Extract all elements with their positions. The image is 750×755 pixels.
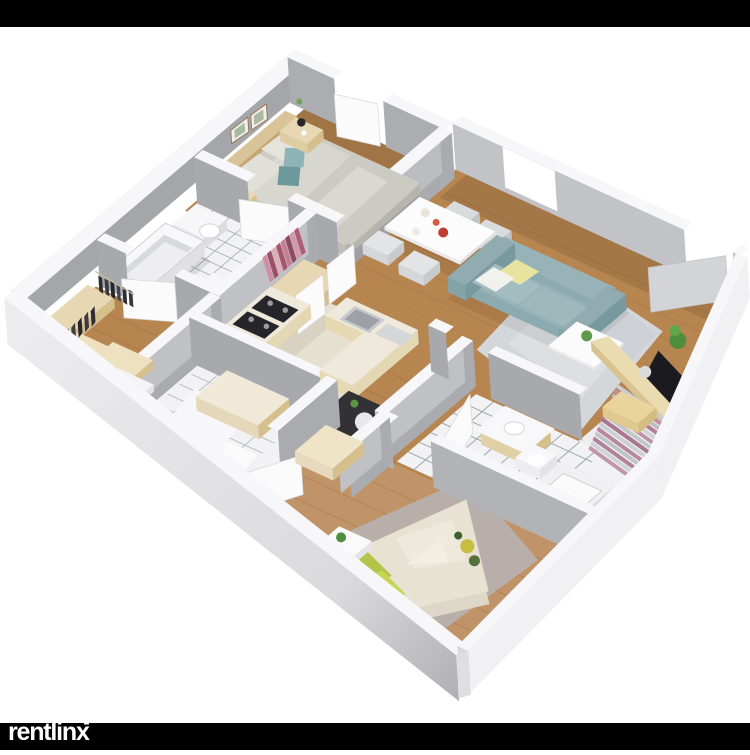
svg-text:rentlinx: rentlinx [8, 718, 90, 746]
